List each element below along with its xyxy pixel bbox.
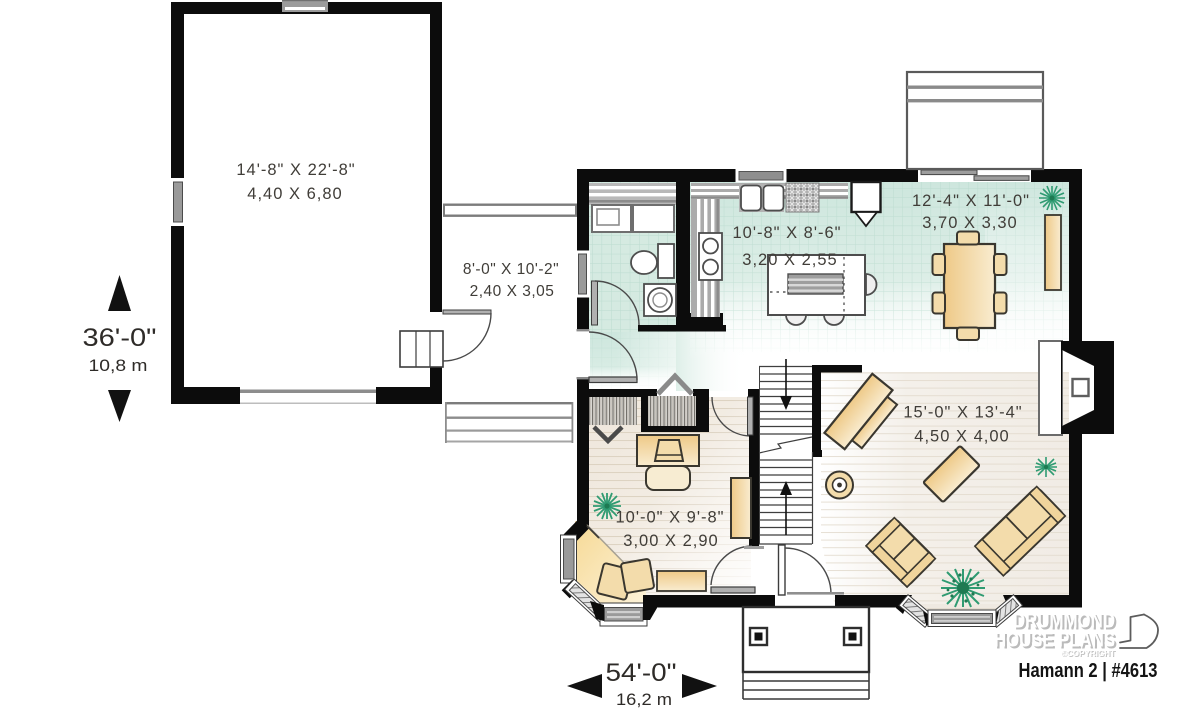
svg-text:3,70 X 3,30: 3,70 X 3,30 <box>922 214 1017 232</box>
svg-text:36'-0": 36'-0" <box>83 324 157 352</box>
svg-text:12'-4" X 11'-0": 12'-4" X 11'-0" <box>912 192 1030 210</box>
svg-text:3,20 X 2,55: 3,20 X 2,55 <box>742 251 837 269</box>
svg-text:4,50 X 4,00: 4,50 X 4,00 <box>914 428 1009 446</box>
svg-text:©COPYRIGHT: ©COPYRIGHT <box>1061 649 1115 658</box>
svg-text:16,2 m: 16,2 m <box>616 690 672 709</box>
svg-text:10'-8" X 8'-6": 10'-8" X 8'-6" <box>732 224 841 242</box>
svg-text:3,00 X 2,90: 3,00 X 2,90 <box>623 532 718 550</box>
svg-text:8'-0" X 10'-2": 8'-0" X 10'-2" <box>463 261 559 278</box>
svg-text:15'-0" X 13'-4": 15'-0" X 13'-4" <box>903 404 1022 422</box>
svg-text:2,40 X 3,05: 2,40 X 3,05 <box>470 283 555 300</box>
svg-text:10,8 m: 10,8 m <box>89 356 148 375</box>
svg-text:10'-0" X 9'-8": 10'-0" X 9'-8" <box>615 509 724 527</box>
svg-text:14'-8" X 22'-8": 14'-8" X 22'-8" <box>236 161 355 179</box>
svg-text:54'-0": 54'-0" <box>606 659 677 687</box>
svg-text:Hamann 2 | #4613: Hamann 2 | #4613 <box>1019 660 1158 682</box>
svg-text:4,40 X 6,80: 4,40 X 6,80 <box>247 185 342 203</box>
